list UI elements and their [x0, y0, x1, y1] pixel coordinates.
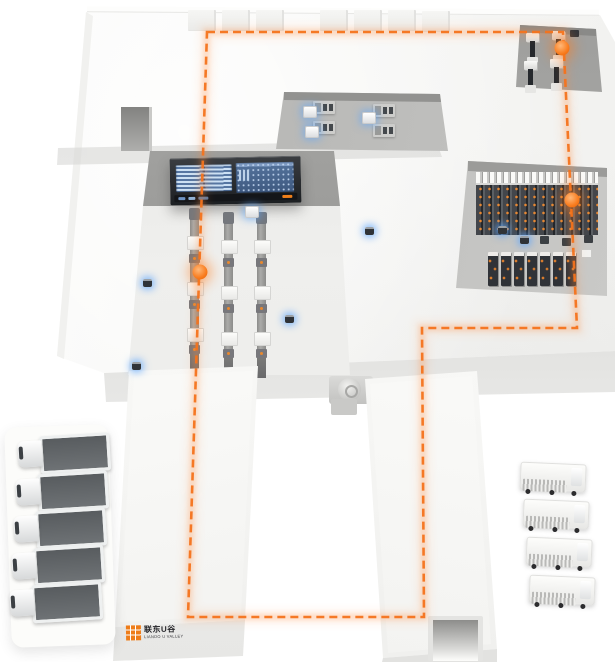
smart-factory-isometric-scene: 联东U谷 LIANDO U VALLEY: [0, 0, 615, 662]
truck-cab: [571, 468, 583, 486]
box-truck: [525, 537, 590, 572]
loading-dock-door: [428, 616, 483, 661]
box-truck: [522, 499, 587, 534]
machine-control-box: [570, 30, 579, 37]
indicator-blue: [198, 197, 208, 200]
indicator-blue: [188, 197, 195, 200]
truck-body: [526, 537, 593, 568]
loading-dock-opening: [433, 620, 478, 661]
truck-wheel: [528, 526, 533, 531]
indicator-orange: [282, 195, 292, 198]
dock-connector-base: [331, 399, 357, 415]
truck-ribbed-panel: [525, 516, 569, 530]
truck-wheel: [571, 491, 576, 496]
brand-logo: 联东U谷 LIANDO U VALLEY: [126, 625, 184, 641]
truck-wheel: [549, 490, 554, 495]
production-dashboard-screen: [170, 156, 302, 206]
ventilation-fan: [338, 378, 361, 401]
truck-wheel: [558, 603, 563, 608]
truck-wheel: [552, 527, 557, 532]
back-rack-row: [476, 183, 598, 235]
truck-ribbed-panel: [531, 592, 575, 606]
orange-grid-square-icon: [126, 625, 141, 640]
truck-wheel: [531, 564, 536, 569]
box-truck: [528, 575, 593, 610]
truck-body: [523, 499, 590, 530]
dashboard-status-grid-screen: [236, 162, 295, 193]
truck-wheel: [555, 565, 560, 570]
box-truck: [519, 462, 584, 497]
truck-wheel: [525, 489, 530, 494]
storage-crate: [581, 249, 592, 258]
truck-cab: [577, 543, 589, 561]
truck-wheel: [577, 566, 582, 571]
dashboard-indicator-strip: [174, 193, 297, 203]
truck-cab: [580, 581, 592, 599]
truck-ribbed-panel: [522, 479, 566, 493]
roof-access-doorway: [121, 107, 152, 151]
truck-wheel: [574, 528, 579, 533]
truck-body: [529, 575, 596, 606]
truck-body: [520, 462, 587, 493]
truck-ribbed-panel: [528, 554, 572, 568]
brand-name-en: LIANDO U VALLEY: [144, 634, 183, 639]
truck-cab: [574, 505, 586, 523]
brand-logo-text: 联东U谷 LIANDO U VALLEY: [144, 626, 184, 640]
dashboard-data-rows-screen: [176, 164, 233, 192]
dashboard-matrix-tile: [239, 170, 250, 181]
truck-wheel: [580, 604, 585, 609]
left-truck-parking-pad: [4, 424, 116, 647]
indicator-blue: [178, 197, 185, 200]
truck-wheel: [534, 602, 539, 607]
